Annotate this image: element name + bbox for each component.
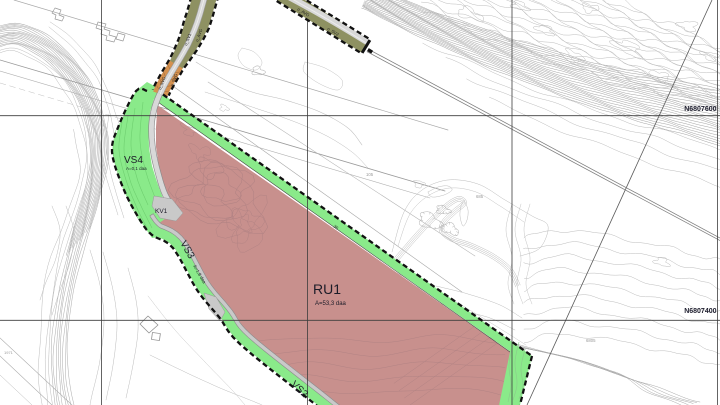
svg-text:685: 685	[476, 194, 484, 199]
svg-text:VS4: VS4	[124, 155, 143, 166]
svg-text:1971: 1971	[4, 350, 14, 355]
svg-text:6805: 6805	[586, 338, 596, 343]
svg-text:105: 105	[366, 172, 374, 177]
svg-text:KV1: KV1	[155, 208, 168, 215]
svg-text:A=53,3 daa: A=53,3 daa	[315, 301, 347, 307]
svg-text:N6807600: N6807600	[684, 106, 716, 113]
svg-text:N6807400: N6807400	[684, 308, 716, 315]
svg-text:RU1: RU1	[313, 281, 341, 297]
svg-text:A=0,1 daa: A=0,1 daa	[126, 166, 147, 171]
